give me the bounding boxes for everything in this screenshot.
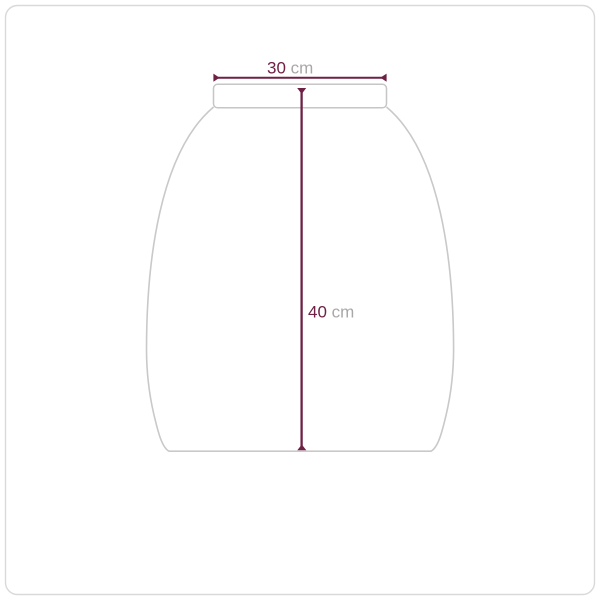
svg-text:30 cm: 30 cm: [267, 58, 313, 77]
svg-text:40 cm: 40 cm: [308, 303, 354, 322]
